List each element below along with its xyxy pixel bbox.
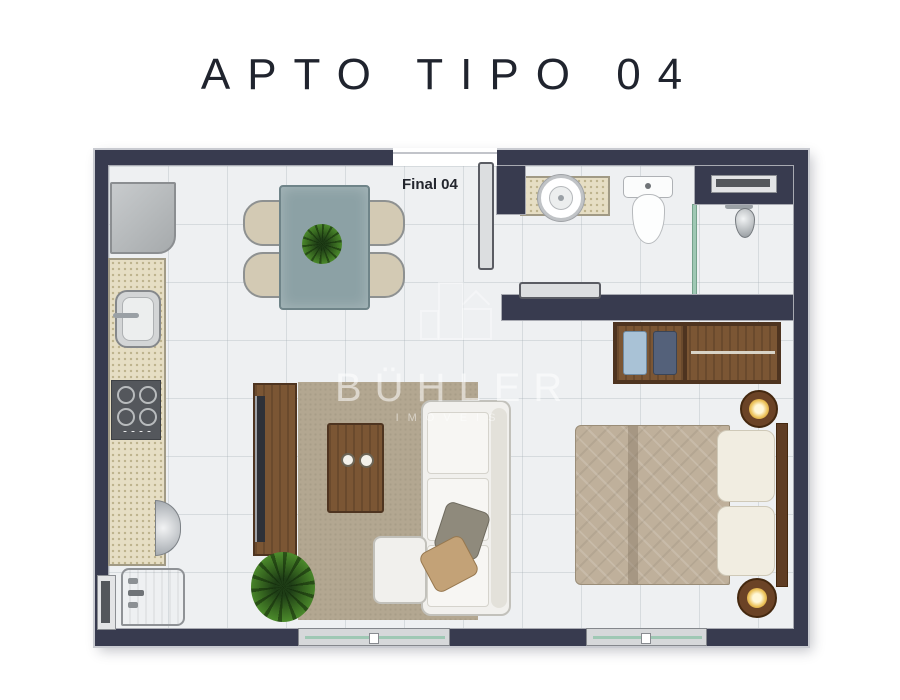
- wardrobe-divider: [683, 326, 687, 380]
- burner-icon: [139, 386, 157, 404]
- page-title: APTO TIPO 04: [0, 50, 900, 100]
- cup-icon: [359, 453, 374, 468]
- shower-glass-partition: [692, 204, 697, 296]
- sink-drain-icon: [558, 195, 564, 201]
- bed-pillow: [717, 506, 775, 576]
- laundry-knob-icon: [128, 578, 138, 584]
- sofa-chaise: [373, 536, 427, 604]
- sofa-backrest: [491, 408, 507, 608]
- folded-clothes-icon: [653, 331, 677, 375]
- burner-icon: [117, 408, 135, 426]
- floorplan-page: APTO TIPO 04: [0, 0, 900, 700]
- bathroom-window: [711, 175, 777, 193]
- laundry-tank: [121, 568, 185, 626]
- floorplan: Final 04 BÜHLER IMÓVEIS: [95, 150, 808, 646]
- door-handle-icon: [641, 633, 651, 644]
- laundry-knob-icon: [128, 590, 144, 596]
- headboard: [776, 423, 788, 587]
- window-glass: [101, 581, 110, 623]
- service-window: [97, 575, 116, 630]
- unit-label: Final 04: [402, 176, 482, 193]
- window-glass: [716, 179, 770, 187]
- kitchen-faucet-icon: [113, 313, 139, 318]
- laundry-knob-icon: [128, 602, 138, 608]
- coffee-table: [327, 423, 384, 513]
- cooktop-knobs: [121, 430, 151, 433]
- folded-clothes-icon: [623, 331, 647, 375]
- entrance-threshold: [393, 152, 497, 154]
- hanging-clothes-icon: [693, 330, 775, 374]
- quilt-fold: [628, 426, 638, 584]
- lamp-glow-icon: [749, 399, 769, 419]
- cup-icon: [341, 453, 355, 467]
- tv-screen: [255, 396, 265, 542]
- burner-icon: [117, 386, 135, 404]
- bed-quilt: [575, 425, 730, 585]
- door-handle-icon: [369, 633, 379, 644]
- bathroom-sliding-door: [519, 282, 601, 299]
- centerpiece-plant-icon: [302, 224, 342, 264]
- bed-pillow: [717, 430, 775, 502]
- nightstand-lamp: [740, 390, 778, 428]
- sofa-cushion: [427, 412, 489, 474]
- kitchen-sink-basin: [122, 297, 154, 341]
- toilet-flush-icon: [645, 183, 651, 189]
- entry-partition-wall: [497, 166, 525, 214]
- lamp-glow-icon: [747, 588, 767, 608]
- bedroom-balcony-sliding-door: [586, 628, 707, 646]
- burner-icon: [139, 408, 157, 426]
- floor-plant-icon: [251, 552, 315, 622]
- nightstand-lamp: [737, 578, 777, 618]
- living-balcony-sliding-door: [298, 628, 450, 646]
- refrigerator: [110, 182, 176, 254]
